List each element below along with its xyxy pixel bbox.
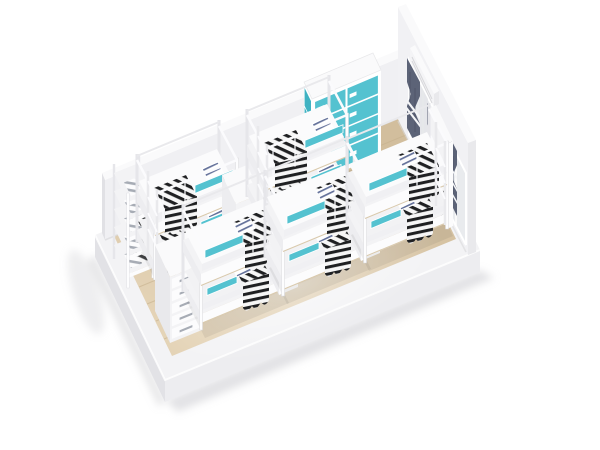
back-wall-end xyxy=(102,173,105,240)
right-wall-end xyxy=(468,140,476,255)
dormitory-render-stage: Dormitory room - isometric 3D render xyxy=(0,0,600,450)
dormitory-room-render: Dormitory room - isometric 3D render xyxy=(0,0,600,450)
